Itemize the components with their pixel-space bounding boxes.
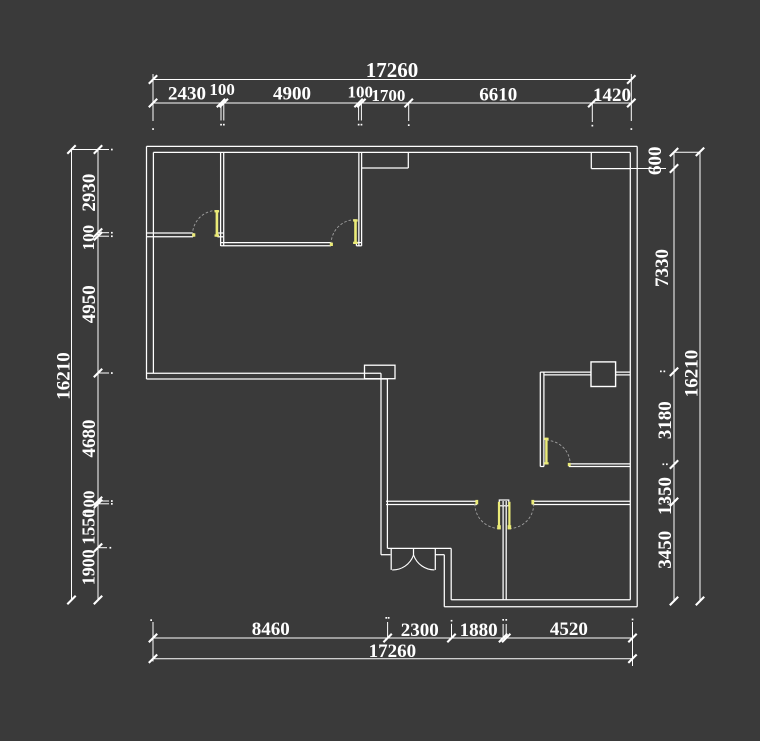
svg-text:100: 100 xyxy=(209,80,235,99)
svg-text:600: 600 xyxy=(645,146,666,175)
svg-text:4900: 4900 xyxy=(273,84,311,105)
svg-text:2300: 2300 xyxy=(401,620,439,641)
svg-text:3180: 3180 xyxy=(655,401,676,439)
svg-text:17260: 17260 xyxy=(366,58,419,82)
svg-text:1350: 1350 xyxy=(655,477,676,515)
svg-text:8460: 8460 xyxy=(252,619,290,640)
svg-text:16210: 16210 xyxy=(682,350,703,398)
svg-text:1420: 1420 xyxy=(593,85,631,106)
svg-text:1880: 1880 xyxy=(460,620,498,641)
svg-text:6610: 6610 xyxy=(479,85,517,106)
svg-text:2930: 2930 xyxy=(79,174,100,212)
svg-text:4680: 4680 xyxy=(79,420,100,458)
svg-text:1700: 1700 xyxy=(371,86,405,105)
svg-text:4520: 4520 xyxy=(550,619,588,640)
svg-text:3450: 3450 xyxy=(655,531,676,569)
svg-text:4950: 4950 xyxy=(79,285,100,323)
svg-text:17260: 17260 xyxy=(369,641,417,662)
svg-text:7330: 7330 xyxy=(652,249,673,287)
svg-text:16210: 16210 xyxy=(54,352,75,400)
svg-text:1550: 1550 xyxy=(79,509,99,545)
svg-text:1900: 1900 xyxy=(79,549,99,585)
svg-text:100: 100 xyxy=(347,83,373,102)
svg-text:2430: 2430 xyxy=(168,84,206,105)
svg-text:100: 100 xyxy=(79,225,98,251)
